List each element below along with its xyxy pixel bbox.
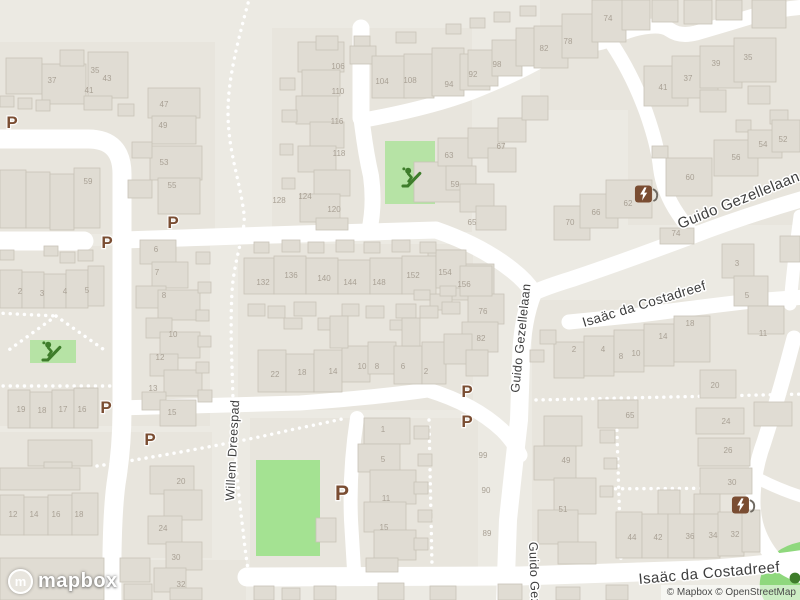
house-number: 132 bbox=[256, 278, 270, 287]
house-number: 19 bbox=[17, 405, 26, 414]
attribution[interactable]: © Mapbox © OpenStreetMap bbox=[661, 585, 800, 600]
house-number: 14 bbox=[659, 332, 668, 341]
parking-marker: P bbox=[6, 113, 17, 132]
parking-marker: P bbox=[335, 482, 349, 505]
house-number: 35 bbox=[91, 66, 100, 75]
house-number: 10 bbox=[358, 362, 367, 371]
house-number: 110 bbox=[332, 87, 345, 96]
house-number: 55 bbox=[168, 181, 177, 190]
house-number: 120 bbox=[327, 205, 341, 214]
house-number: 49 bbox=[562, 456, 571, 465]
house-number: 92 bbox=[469, 70, 478, 79]
house-number: 41 bbox=[85, 86, 94, 95]
parking-marker: P bbox=[144, 430, 155, 449]
house-number: 34 bbox=[709, 531, 718, 540]
house-number: 156 bbox=[457, 280, 471, 289]
house-number: 18 bbox=[38, 406, 47, 415]
house-number: 67 bbox=[497, 142, 506, 151]
house-number: 39 bbox=[712, 59, 721, 68]
park-field-south bbox=[256, 460, 320, 556]
house-number: 148 bbox=[372, 278, 386, 287]
house-number: 8 bbox=[375, 362, 380, 371]
house-number: 54 bbox=[759, 140, 768, 149]
house-number: 44 bbox=[628, 533, 637, 542]
parking-marker: P bbox=[101, 233, 112, 252]
house-number: 78 bbox=[564, 37, 573, 46]
house-number: 10 bbox=[169, 330, 178, 339]
house-number: 41 bbox=[659, 83, 668, 92]
parking-marker: P bbox=[100, 398, 111, 417]
street-label: Guido Gezellelaan bbox=[526, 542, 544, 600]
house-number: 66 bbox=[592, 208, 601, 217]
house-number: 43 bbox=[103, 74, 112, 83]
house-number: 3 bbox=[735, 259, 740, 268]
house-number: 7 bbox=[155, 268, 160, 277]
house-number: 20 bbox=[177, 477, 186, 486]
house-number: 10 bbox=[632, 349, 641, 358]
house-number: 16 bbox=[52, 510, 61, 519]
house-number: 37 bbox=[48, 76, 57, 85]
house-number: 59 bbox=[451, 180, 460, 189]
house-number: 4 bbox=[63, 287, 68, 296]
house-number: 8 bbox=[162, 291, 167, 300]
house-number: 59 bbox=[84, 177, 93, 186]
house-number: 4 bbox=[601, 345, 606, 354]
parking-marker: P bbox=[167, 213, 178, 232]
house-number: 140 bbox=[317, 274, 331, 283]
house-number: 30 bbox=[172, 553, 181, 562]
house-number: 24 bbox=[722, 417, 731, 426]
mapbox-logo-text: mapbox bbox=[38, 570, 118, 593]
house-number: 20 bbox=[711, 381, 720, 390]
house-number: 32 bbox=[731, 530, 740, 539]
parking-marker: P bbox=[461, 382, 472, 401]
house-number: 74 bbox=[604, 14, 613, 23]
house-number: 128 bbox=[272, 196, 286, 205]
house-number: 26 bbox=[724, 446, 733, 455]
house-number: 94 bbox=[445, 80, 454, 89]
house-number: 42 bbox=[654, 533, 663, 542]
house-number: 104 bbox=[375, 77, 389, 86]
map-canvas[interactable]: 3537414347495355591061101161181201241281… bbox=[0, 0, 800, 600]
house-number: 17 bbox=[59, 405, 68, 414]
house-number: 82 bbox=[477, 334, 486, 343]
house-number: 53 bbox=[160, 158, 169, 167]
house-number: 106 bbox=[331, 62, 345, 71]
mapbox-logo-icon: m bbox=[8, 569, 33, 594]
house-number: 12 bbox=[156, 353, 165, 362]
house-number: 18 bbox=[686, 319, 695, 328]
house-number: 1 bbox=[381, 425, 386, 434]
house-number: 14 bbox=[329, 367, 338, 376]
house-number: 98 bbox=[493, 60, 502, 69]
house-number: 3 bbox=[40, 289, 45, 298]
house-number: 6 bbox=[401, 362, 406, 371]
house-number: 18 bbox=[75, 510, 84, 519]
house-number: 2 bbox=[572, 345, 577, 354]
house-number: 62 bbox=[624, 199, 633, 208]
house-number: 47 bbox=[160, 100, 169, 109]
house-number: 82 bbox=[540, 44, 549, 53]
house-number: 76 bbox=[479, 307, 488, 316]
house-number: 12 bbox=[9, 510, 18, 519]
house-number: 65 bbox=[626, 411, 635, 420]
house-number: 13 bbox=[149, 384, 158, 393]
house-number: 8 bbox=[619, 352, 624, 361]
park-playground-west bbox=[30, 340, 76, 363]
house-number: 35 bbox=[744, 53, 753, 62]
map-tiles: 3537414347495355591061101161181201241281… bbox=[0, 0, 800, 600]
house-number: 37 bbox=[684, 74, 693, 83]
house-number: 15 bbox=[380, 523, 389, 532]
house-number: 30 bbox=[728, 478, 737, 487]
house-number: 6 bbox=[154, 245, 159, 254]
house-number: 63 bbox=[445, 151, 454, 160]
house-number: 118 bbox=[333, 149, 346, 158]
house-number: 24 bbox=[159, 524, 168, 533]
house-number: 152 bbox=[406, 271, 420, 280]
house-number: 51 bbox=[559, 505, 568, 514]
house-number: 2 bbox=[18, 287, 23, 296]
house-number: 116 bbox=[331, 117, 344, 126]
house-number: 136 bbox=[284, 271, 298, 280]
house-number: 5 bbox=[381, 455, 386, 464]
house-number: 154 bbox=[438, 268, 452, 277]
house-number: 15 bbox=[168, 408, 177, 417]
mapbox-logo[interactable]: m mapbox bbox=[8, 569, 118, 594]
road bbox=[351, 418, 357, 570]
parking-marker: P bbox=[461, 412, 472, 431]
house-number: 5 bbox=[85, 286, 90, 295]
house-number: 22 bbox=[271, 370, 280, 379]
house-number: 11 bbox=[382, 494, 391, 503]
house-number: 49 bbox=[159, 121, 168, 130]
house-number: 52 bbox=[779, 135, 788, 144]
house-number: 14 bbox=[30, 510, 39, 519]
house-number: 11 bbox=[759, 329, 768, 338]
house-number: 16 bbox=[78, 405, 87, 414]
house-number: 56 bbox=[732, 153, 741, 162]
house-number: 99 bbox=[479, 451, 488, 460]
house-number: 60 bbox=[686, 173, 695, 182]
house-number: 32 bbox=[177, 580, 186, 589]
house-number: 90 bbox=[482, 486, 491, 495]
house-number: 65 bbox=[468, 218, 477, 227]
house-number: 89 bbox=[483, 529, 492, 538]
house-number: 108 bbox=[403, 76, 417, 85]
house-number: 36 bbox=[686, 532, 695, 541]
house-number: 2 bbox=[424, 367, 429, 376]
house-number: 5 bbox=[745, 291, 750, 300]
house-number: 70 bbox=[566, 218, 575, 227]
tree-icon bbox=[790, 573, 800, 584]
house-number: 144 bbox=[343, 278, 357, 287]
house-number: 18 bbox=[298, 368, 307, 377]
house-number: 124 bbox=[298, 192, 312, 201]
